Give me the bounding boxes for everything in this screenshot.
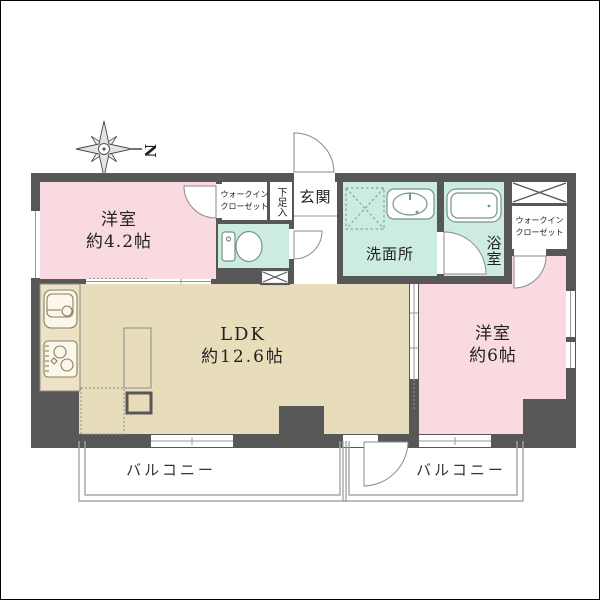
duct-x-icon [261,270,289,284]
bathroom-door-arc [444,232,486,274]
bedroom2-size: 約6帖 [423,345,563,367]
pipe-space-x-icon [513,183,566,202]
washroom-label: 洗面所 [345,245,435,265]
ldk-size: 約12.6帖 [163,346,323,368]
wic-right-line2: クローゼット [512,227,567,239]
toilet-door-arc [294,231,322,259]
bedroom1-size: 約4.2帖 [49,231,189,253]
ldk-name: LDK [163,323,323,346]
wic-top-line2: クローゼット [220,201,269,213]
entrance-door-arc [294,133,334,172]
ldk-label: LDK 約12.6帖 [163,323,323,368]
refrigerator-space [81,388,124,434]
wic-right-line1: ウォークイン [512,215,567,227]
balcony-right-label: バルコニー [401,461,521,481]
washing-machine-space-icon [346,188,384,229]
balcony-left-label: バルコニー [111,461,231,481]
wic-right-door-arc [514,256,546,288]
wic-top-line1: ウォークイン [220,189,269,201]
kitchen-sink-icon [44,290,77,328]
bathtub-icon [447,189,501,222]
bedroom1-name: 洋室 [49,209,189,231]
wic-right-label: ウォークイン クローゼット [512,215,567,239]
wic-top-label: ウォークイン クローゼット [220,189,269,213]
shoe-box-label: 下足入 [275,185,286,218]
bathroom-label: 浴室 [483,229,503,273]
toilet-icon [222,232,262,262]
compass-star-icon [76,121,142,177]
kitchen-island-cabinet [81,328,151,434]
compass-north-label: N [139,143,159,159]
gas-stove-icon [44,341,77,377]
bedroom1-label: 洋室 約4.2帖 [49,209,189,253]
floorplan-image: 洋室 約4.2帖 LDK 約12.6帖 洋室 約6帖 玄関 洗面所 浴室 下足入… [0,0,600,600]
plan-linework [1,1,599,599]
entrance-label: 玄関 [294,188,337,208]
door-arcs [184,133,546,486]
washbasin-icon [387,189,434,219]
bedroom2-label: 洋室 約6帖 [423,323,563,367]
bedroom2-name: 洋室 [423,323,563,345]
